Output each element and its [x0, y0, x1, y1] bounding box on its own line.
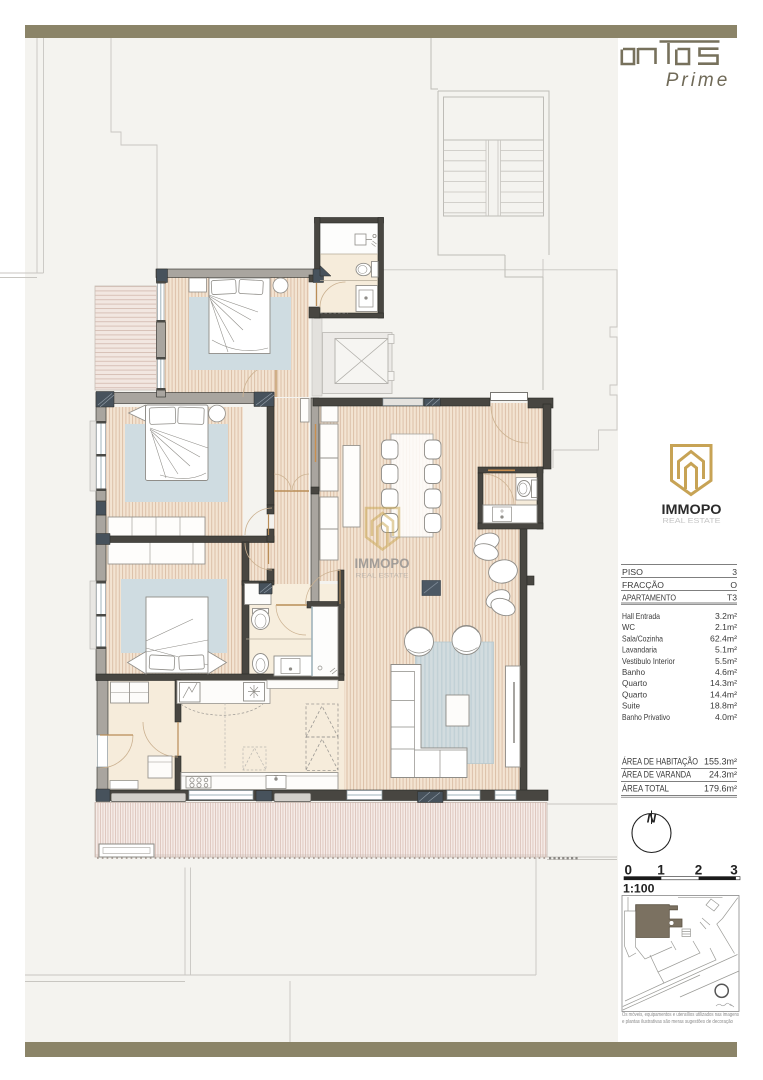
svg-text:Os móveis, equipamentos e uten: Os móveis, equipamentos e utensílios uti…: [622, 1012, 739, 1018]
svg-text:3.2m²: 3.2m²: [715, 611, 737, 621]
svg-text:Prime: Prime: [666, 70, 731, 91]
svg-text:Banho: Banho: [622, 667, 645, 677]
svg-text:ÁREA TOTAL: ÁREA TOTAL: [622, 784, 669, 794]
svg-text:Sala/Cozinha: Sala/Cozinha: [622, 633, 663, 643]
svg-text:Suite: Suite: [622, 701, 640, 711]
svg-text:Lavandaria: Lavandaria: [622, 645, 657, 655]
svg-text:14.3m²: 14.3m²: [710, 678, 737, 688]
svg-text:2: 2: [695, 863, 703, 878]
svg-text:Vestibulo Interior: Vestibulo Interior: [622, 656, 675, 666]
svg-text:APARTAMENTO: APARTAMENTO: [622, 593, 676, 603]
svg-text:e plantas ilustrativas são mer: e plantas ilustrativas são meras sugestõ…: [622, 1019, 733, 1025]
svg-text:5.1m²: 5.1m²: [715, 645, 737, 655]
svg-text:2.1m²: 2.1m²: [715, 622, 737, 632]
svg-text:4.0m²: 4.0m²: [715, 712, 737, 722]
svg-text:3: 3: [732, 567, 737, 577]
svg-text:155.3m²: 155.3m²: [704, 757, 737, 767]
svg-text:REAL ESTATE: REAL ESTATE: [356, 573, 410, 580]
svg-text:IMMOPO: IMMOPO: [662, 502, 722, 517]
svg-text:PISO: PISO: [622, 567, 643, 577]
svg-text:14.4m²: 14.4m²: [710, 689, 737, 699]
svg-text:O: O: [730, 580, 737, 590]
svg-text:REAL ESTATE: REAL ESTATE: [663, 516, 721, 525]
svg-text:62.4m²: 62.4m²: [710, 633, 737, 643]
svg-text:ÁREA DE VARANDA: ÁREA DE VARANDA: [622, 770, 691, 780]
svg-text:1:100: 1:100: [623, 882, 655, 896]
svg-text:18.8m²: 18.8m²: [710, 701, 737, 711]
svg-text:3: 3: [730, 863, 738, 878]
svg-text:24.3m²: 24.3m²: [709, 770, 737, 780]
svg-text:ÁREA DE HABITAÇÃO: ÁREA DE HABITAÇÃO: [622, 757, 698, 767]
svg-text:FRACÇÃO: FRACÇÃO: [622, 580, 664, 590]
svg-text:T3: T3: [727, 593, 737, 603]
svg-text:IMMOPO: IMMOPO: [355, 556, 410, 571]
svg-text:5.5m²: 5.5m²: [715, 656, 737, 666]
svg-text:4.6m²: 4.6m²: [715, 667, 737, 677]
svg-text:0: 0: [625, 863, 633, 878]
svg-text:WC: WC: [622, 622, 635, 632]
svg-text:Hall Entrada: Hall Entrada: [622, 611, 660, 621]
svg-text:1: 1: [657, 863, 665, 878]
svg-text:Banho Privativo: Banho Privativo: [622, 712, 670, 722]
svg-text:179.6m²: 179.6m²: [704, 784, 737, 794]
svg-text:Quarto: Quarto: [622, 678, 647, 688]
svg-text:Quarto: Quarto: [622, 689, 647, 699]
